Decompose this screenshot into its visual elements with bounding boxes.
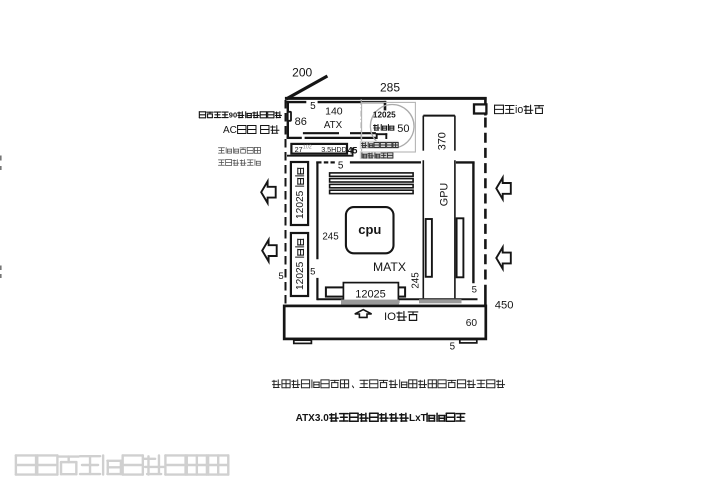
- svg-text:200: 200: [292, 66, 312, 80]
- svg-text:MATX: MATX: [373, 260, 406, 274]
- svg-text:5: 5: [472, 284, 477, 295]
- svg-text:12025: 12025: [373, 110, 396, 119]
- svg-text:50: 50: [397, 123, 409, 135]
- svg-text:245: 245: [322, 232, 339, 243]
- svg-text:5: 5: [450, 342, 456, 353]
- svg-text:370: 370: [436, 132, 448, 150]
- svg-text:ATX: ATX: [324, 120, 343, 131]
- svg-text:60: 60: [466, 318, 478, 329]
- svg-text:12025: 12025: [295, 261, 306, 290]
- svg-text:5: 5: [310, 267, 315, 278]
- svg-text:285: 285: [380, 80, 400, 94]
- svg-text:12025: 12025: [295, 190, 306, 219]
- svg-text:ATX3.0: ATX3.0: [296, 413, 330, 424]
- svg-text:102: 102: [303, 145, 312, 151]
- svg-text:LxT: LxT: [409, 413, 427, 424]
- svg-text:140: 140: [325, 106, 343, 118]
- svg-text:3.5HDD: 3.5HDD: [321, 145, 347, 154]
- svg-text:5: 5: [278, 271, 283, 282]
- svg-text:IO: IO: [384, 311, 396, 323]
- svg-text:27: 27: [295, 145, 303, 154]
- svg-text:io: io: [515, 104, 523, 116]
- svg-text:5: 5: [310, 101, 316, 112]
- svg-text:86: 86: [295, 116, 307, 128]
- svg-text:450: 450: [495, 299, 514, 311]
- svg-text:90: 90: [229, 110, 237, 119]
- svg-text:12025: 12025: [355, 288, 386, 300]
- svg-text:AC: AC: [223, 125, 237, 136]
- svg-text:cpu: cpu: [358, 222, 381, 237]
- svg-text:245: 245: [410, 272, 421, 289]
- svg-text:5: 5: [338, 160, 344, 171]
- svg-text:GPU: GPU: [439, 183, 451, 206]
